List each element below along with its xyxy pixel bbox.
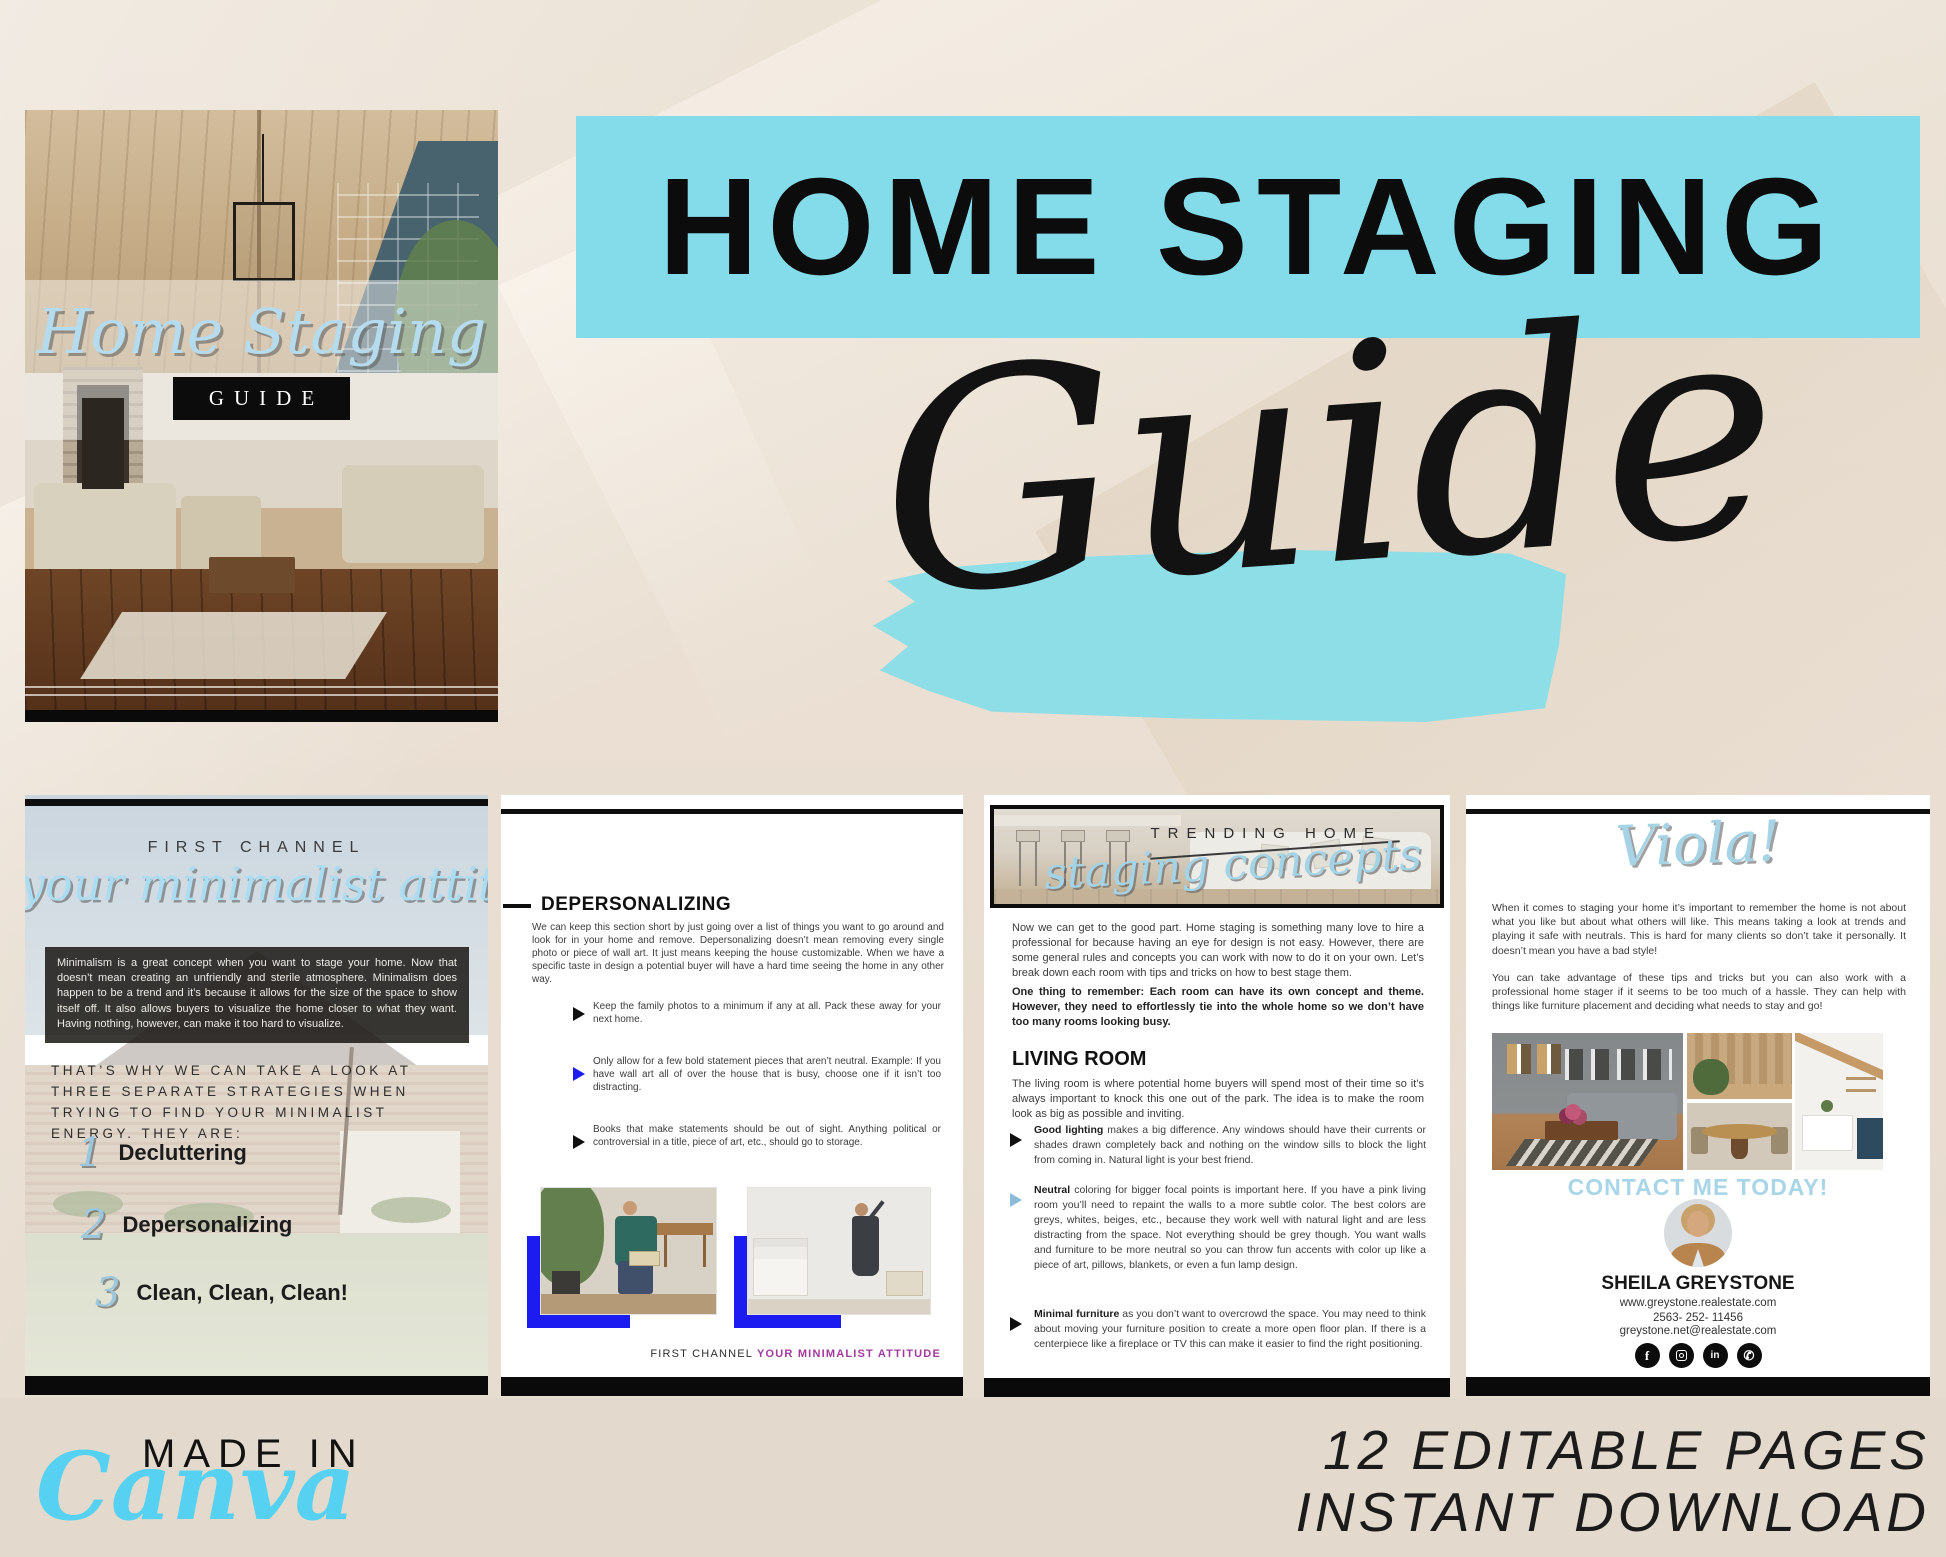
contact-cta: CONTACT ME TODAY! — [1466, 1174, 1930, 1201]
gallery-frames — [1565, 1049, 1672, 1079]
promo-text: 12 EDITABLE PAGES INSTANT DOWNLOAD — [1296, 1420, 1930, 1543]
moving-box — [886, 1271, 922, 1296]
page1-script-title: your minimalist attitude — [25, 861, 488, 907]
page2-heading-dash — [503, 904, 531, 908]
page3-bullet: Neutral coloring for bigger focal points… — [1034, 1183, 1426, 1272]
page1-kicker: FIRST CHANNEL — [25, 839, 488, 857]
plant — [1821, 1100, 1833, 1112]
avatar-face — [1687, 1211, 1709, 1237]
kitchen-island — [1802, 1115, 1853, 1151]
page3-bullet: Minimal furniture as you don’t want to o… — [1034, 1307, 1426, 1352]
cover-guide-label: GUIDE — [173, 377, 350, 420]
page-2-preview: DEPERSONALIZING We can keep this section… — [501, 795, 963, 1396]
books — [629, 1251, 661, 1266]
page3-bullet: Good lighting makes a big difference. An… — [1034, 1123, 1426, 1168]
cover-photo-chandelier — [233, 202, 294, 282]
cover-photo-firebox — [82, 398, 125, 490]
bullet-bold: Good lighting — [1034, 1124, 1103, 1136]
flowers — [1565, 1104, 1581, 1120]
bullet-triangle-icon — [1010, 1193, 1022, 1207]
person — [855, 1203, 868, 1216]
page2-photo-left — [540, 1187, 717, 1315]
page2-intro: We can keep this section short by just g… — [532, 921, 944, 986]
page2-bullet: Only allow for a few bold statement piec… — [593, 1055, 941, 1094]
page2-photo-right — [747, 1187, 931, 1315]
cover-photo-sofa — [34, 483, 176, 575]
page-3-preview: TRENDING HOME staging concepts Now we ca… — [984, 795, 1450, 1397]
rug — [1505, 1139, 1658, 1166]
footer-title: YOUR MINIMALIST ATTITUDE — [757, 1348, 941, 1360]
agent-website: www.greystone.realestate.com — [1466, 1297, 1930, 1309]
bullet-bold: Minimal furniture — [1034, 1308, 1119, 1320]
table — [657, 1223, 713, 1234]
person — [623, 1201, 637, 1215]
cover-photo-coffee-table — [209, 557, 294, 594]
page2-bottom-bar — [501, 1377, 963, 1396]
table-leg — [664, 1235, 667, 1268]
listing-graphic: Home Staging GUIDE HOME STAGING Guide FI… — [0, 0, 1946, 1557]
agent-avatar — [1664, 1199, 1732, 1267]
floor — [541, 1294, 716, 1314]
list-label: Clean, Clean, Clean! — [136, 1280, 348, 1306]
page2-top-rule — [501, 809, 963, 814]
bullet-triangle-icon — [573, 1135, 585, 1149]
list-item: 1 Decluttering — [77, 1133, 247, 1173]
social-icons-row: f in ✆ — [1466, 1343, 1930, 1368]
floor — [748, 1299, 930, 1314]
cover-script-title: Home Staging — [36, 301, 486, 363]
page3-header-photo: TRENDING HOME staging concepts — [990, 805, 1444, 908]
page2-heading: DEPERSONALIZING — [541, 894, 731, 916]
promo-line-2: INSTANT DOWNLOAD — [1296, 1482, 1930, 1544]
page-1-preview: FIRST CHANNEL your minimalist attitude M… — [25, 795, 488, 1395]
table-top — [1702, 1124, 1778, 1139]
promo-line-1: 12 EDITABLE PAGES — [1296, 1420, 1930, 1482]
hallway-photo — [1687, 1033, 1792, 1099]
canva-logo: Canva — [36, 1438, 356, 1537]
table-leg — [703, 1235, 706, 1268]
unpacking-room-photo — [747, 1187, 931, 1315]
navy-cabinets — [1857, 1118, 1883, 1159]
cover-photo-chandelier-stem — [262, 134, 264, 201]
cover-divider-line — [25, 686, 498, 688]
page-4-preview: Viola! When it comes to staging your hom… — [1466, 795, 1930, 1396]
page3-living-room-intro: The living room is where potential home … — [1012, 1077, 1424, 1122]
list-item: 2 Depersonalizing — [81, 1205, 292, 1245]
bullet-triangle-icon — [573, 1067, 585, 1081]
page2-footer: FIRST CHANNEL YOUR MINIMALIST ATTITUDE — [650, 1348, 941, 1360]
cover-photo-rug — [80, 612, 387, 679]
page4-bottom-bar — [1466, 1377, 1930, 1396]
agent-phone: 2563- 252- 11456 — [1466, 1312, 1930, 1324]
person — [852, 1216, 879, 1276]
linkedin-icon: in — [1703, 1343, 1728, 1368]
bullet-triangle-icon — [1010, 1317, 1022, 1331]
list-label: Depersonalizing — [122, 1212, 292, 1238]
coffee-table — [1545, 1121, 1618, 1140]
hero-script-subtitle: Guide — [869, 276, 1590, 654]
list-number: 1 — [77, 1133, 102, 1173]
bar-stool — [1016, 830, 1040, 886]
wall-shelf — [1507, 1044, 1564, 1074]
cover-bottom-bar — [25, 710, 498, 722]
page3-bottom-bar — [984, 1378, 1450, 1397]
bullet-bold: Neutral — [1034, 1184, 1070, 1196]
page3-reminder: One thing to remember: Each room can hav… — [1012, 985, 1424, 1030]
packing-books-photo — [540, 1187, 717, 1315]
list-number: 3 — [95, 1273, 120, 1313]
cover-divider-line — [25, 694, 498, 696]
list-label: Decluttering — [118, 1140, 246, 1166]
list-number: 2 — [81, 1205, 106, 1245]
footer-kicker: FIRST CHANNEL — [650, 1348, 757, 1360]
table-pedestal — [1731, 1137, 1748, 1160]
page1-top-bar — [25, 799, 488, 806]
agent-email: greystone.net@realestate.com — [1466, 1325, 1930, 1337]
dining-photo — [1687, 1103, 1792, 1170]
cover-thumbnail: Home Staging GUIDE — [25, 110, 498, 722]
living-room-photo — [1492, 1033, 1683, 1170]
open-shelves — [1846, 1077, 1876, 1080]
bullet-triangle-icon — [1010, 1133, 1022, 1147]
bullet-triangle-icon — [573, 1007, 585, 1021]
cover-photo-sofa — [342, 465, 484, 563]
dresser — [753, 1238, 808, 1296]
page3-intro: Now we can get to the good part. Home st… — [1012, 921, 1424, 981]
page2-bullet: Books that make statements should be out… — [593, 1123, 941, 1149]
kitchen-photo — [1795, 1033, 1883, 1170]
instagram-icon — [1669, 1343, 1694, 1368]
page2-bullet: Keep the family photos to a minimum if a… — [593, 1000, 941, 1026]
agent-name: SHEILA GREYSTONE — [1466, 1273, 1930, 1295]
page1-bottom-bar — [25, 1376, 488, 1395]
plant — [1693, 1059, 1729, 1095]
whatsapp-icon: ✆ — [1737, 1343, 1762, 1368]
page3-living-room-heading: LIVING ROOM — [1012, 1048, 1146, 1071]
page1-intro-box: Minimalism is a great concept when you w… — [45, 947, 469, 1043]
list-item: 3 Clean, Clean, Clean! — [95, 1273, 348, 1313]
facebook-icon: f — [1635, 1343, 1660, 1368]
bullet-text: coloring for bigger focal points is impo… — [1034, 1184, 1426, 1271]
